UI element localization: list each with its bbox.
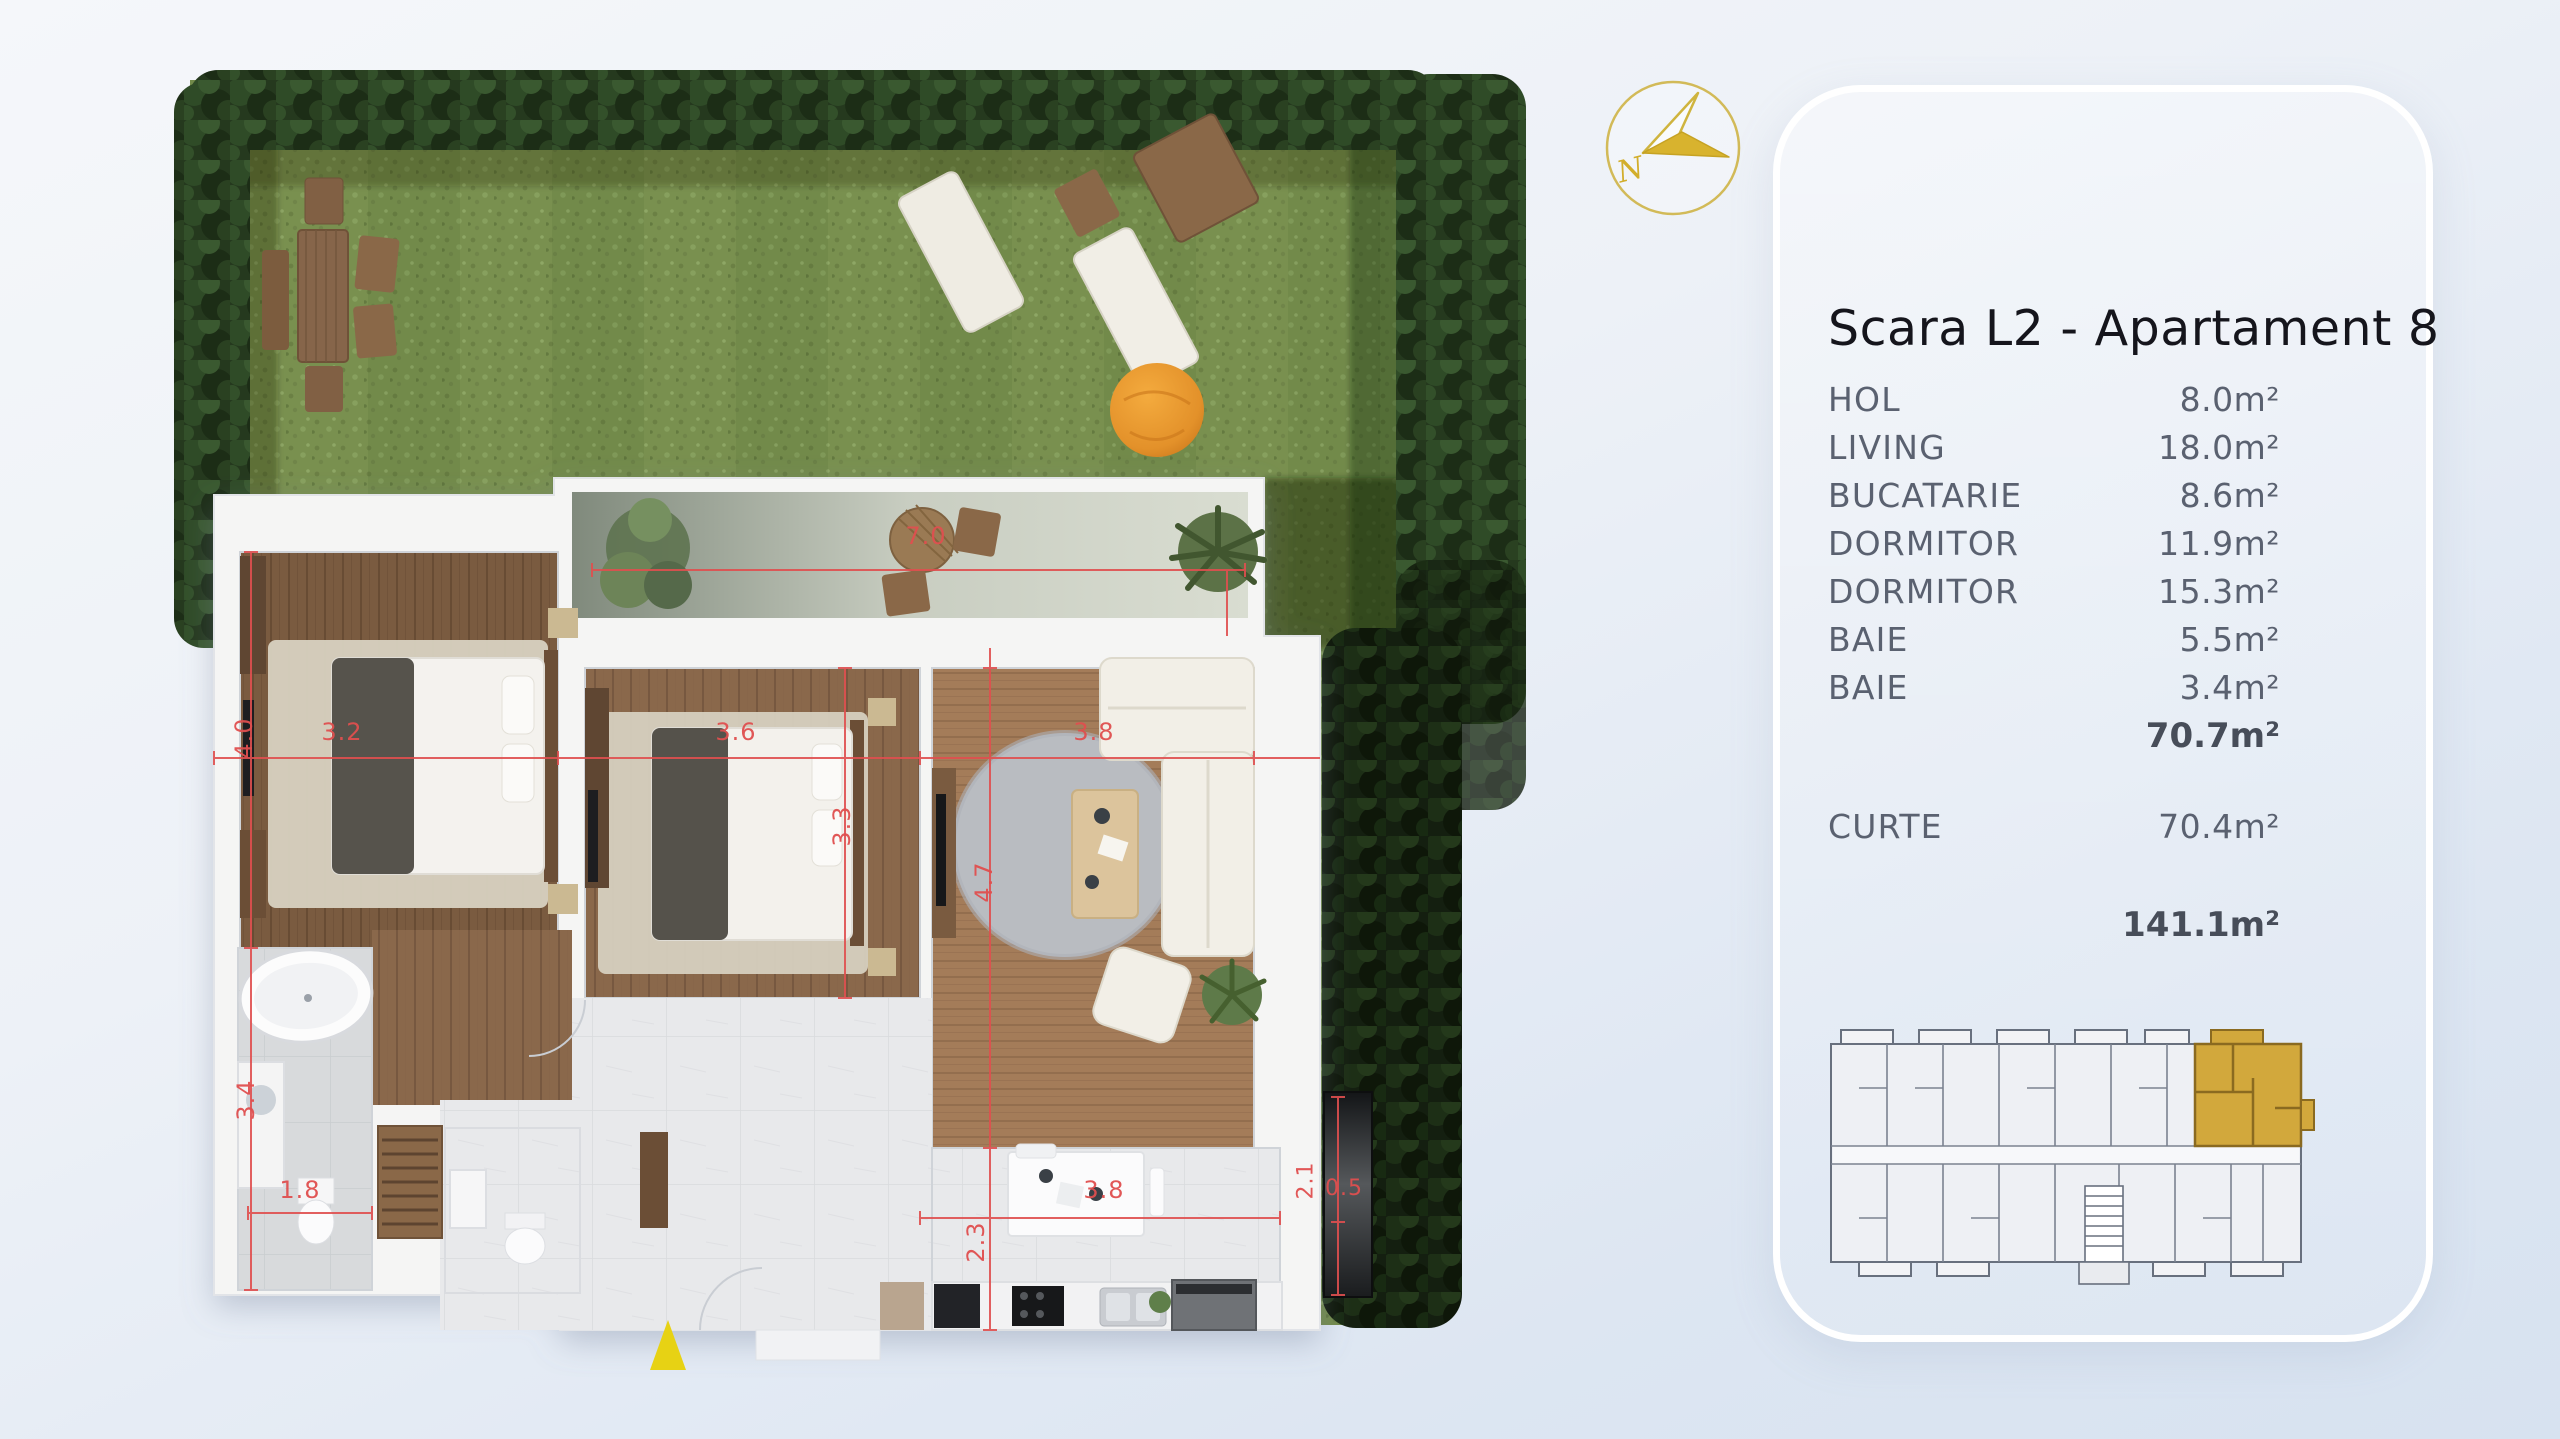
apartment-title: Scara L2 - Apartament 8 (1828, 300, 2388, 357)
room-area: 8.0m² (2180, 380, 2280, 419)
room-area: 8.6m² (2180, 476, 2280, 515)
toilet (298, 1200, 334, 1244)
dim-bath1-height: 3.4 (232, 1072, 260, 1128)
room-label: BAIE (1828, 668, 1909, 707)
room-area: 11.9m² (2158, 524, 2280, 563)
room-list: HOL 8.0m² LIVING 18.0m² BUCATARIE 8.6m² … (1828, 380, 2280, 716)
dim-bath1-width: 1.8 (272, 1176, 328, 1204)
room-row-dormitor-2: DORMITOR 15.3m² (1828, 572, 2280, 620)
curte-area: 70.4m² (2158, 807, 2280, 846)
corridor-floor (372, 930, 572, 1105)
dim-bedroom2-height: 3.3 (828, 798, 856, 854)
dim-side-width: 0.5 (1316, 1176, 1372, 1201)
dim-kitchen-height: 2.3 (962, 1214, 990, 1270)
room-label: BUCATARIE (1828, 476, 2022, 515)
curte-row: CURTE 70.4m² (1828, 807, 2280, 855)
room-area: 5.5m² (2180, 620, 2280, 659)
grand-total: 141.1m² (1828, 905, 2280, 953)
compass-icon: N (1598, 73, 1748, 223)
room-label: DORMITOR (1828, 572, 2019, 611)
dim-terrace-width: 7.0 (898, 522, 954, 550)
room-row-hol: HOL 8.0m² (1828, 380, 2280, 428)
dim-bedroom1-width: 3.2 (314, 718, 370, 746)
interior-total-value: 70.7m² (2146, 716, 2280, 764)
dim-bedroom2-width: 3.6 (708, 718, 764, 746)
room-area: 18.0m² (2158, 428, 2280, 467)
dim-living-width: 3.8 (1066, 718, 1122, 746)
terrace (572, 492, 1264, 618)
room-row-bucatarie: BUCATARIE 8.6m² (1828, 476, 2280, 524)
room-label: DORMITOR (1828, 524, 2019, 563)
room-row-living: LIVING 18.0m² (1828, 428, 2280, 476)
room-label: BAIE (1828, 620, 1909, 659)
building-key-plan (1823, 1018, 2323, 1298)
dim-kitchen-width: 3.8 (1076, 1176, 1132, 1204)
page: 7.0 4.0 3.2 3.6 3.3 3.8 4.7 3.4 1.8 3.8 … (0, 0, 2560, 1439)
curte-label: CURTE (1828, 807, 1943, 846)
dim-side-height: 2.1 (1294, 1153, 1319, 1209)
grand-total-value: 141.1m² (2122, 905, 2280, 953)
stove (1012, 1286, 1064, 1326)
room-row-dormitor-1: DORMITOR 11.9m² (1828, 524, 2280, 572)
toilet (505, 1228, 545, 1264)
room-area: 15.3m² (2158, 572, 2280, 611)
interior-total: 70.7m² (1828, 716, 2280, 764)
room-label: HOL (1828, 380, 1901, 419)
pouf (1110, 363, 1204, 457)
room-label: LIVING (1828, 428, 1946, 467)
dim-bedroom1-height: 4.0 (230, 710, 258, 766)
dim-living-height: 4.7 (970, 854, 998, 910)
highlighted-unit (2195, 1030, 2314, 1146)
room-row-baie-1: BAIE 5.5m² (1828, 620, 2280, 668)
sink (450, 1170, 486, 1228)
room-row-baie-2: BAIE 3.4m² (1828, 668, 2280, 716)
entrance-porch (756, 1330, 880, 1360)
room-area: 3.4m² (2180, 668, 2280, 707)
